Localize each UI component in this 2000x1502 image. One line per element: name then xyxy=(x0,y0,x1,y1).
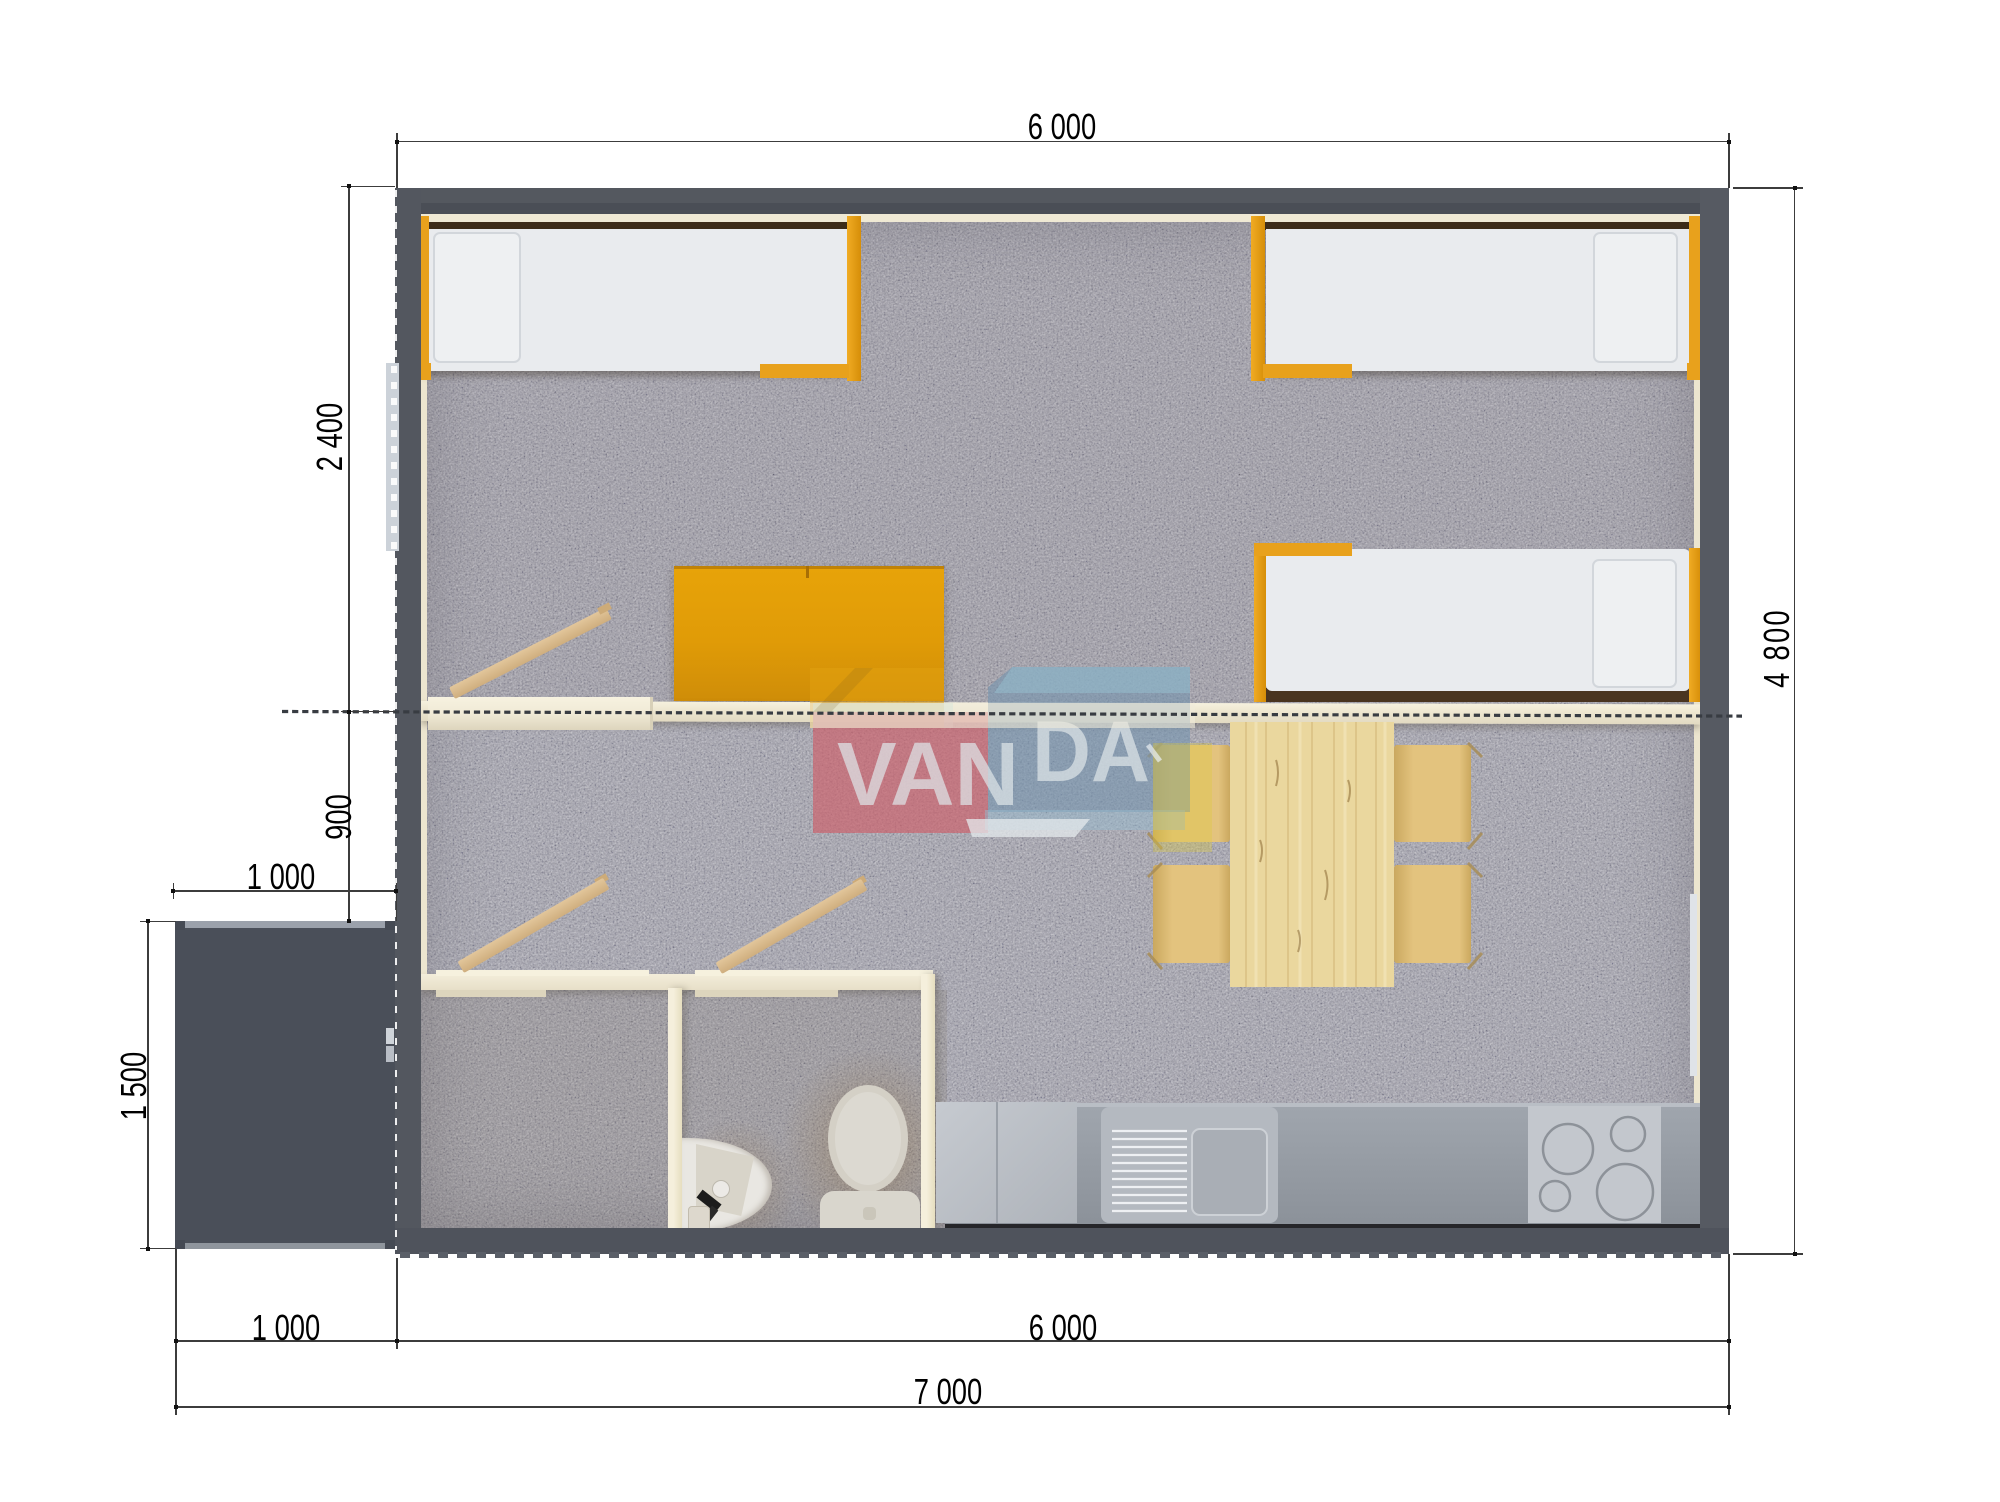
svg-text:VAN: VAN xyxy=(837,725,1019,825)
